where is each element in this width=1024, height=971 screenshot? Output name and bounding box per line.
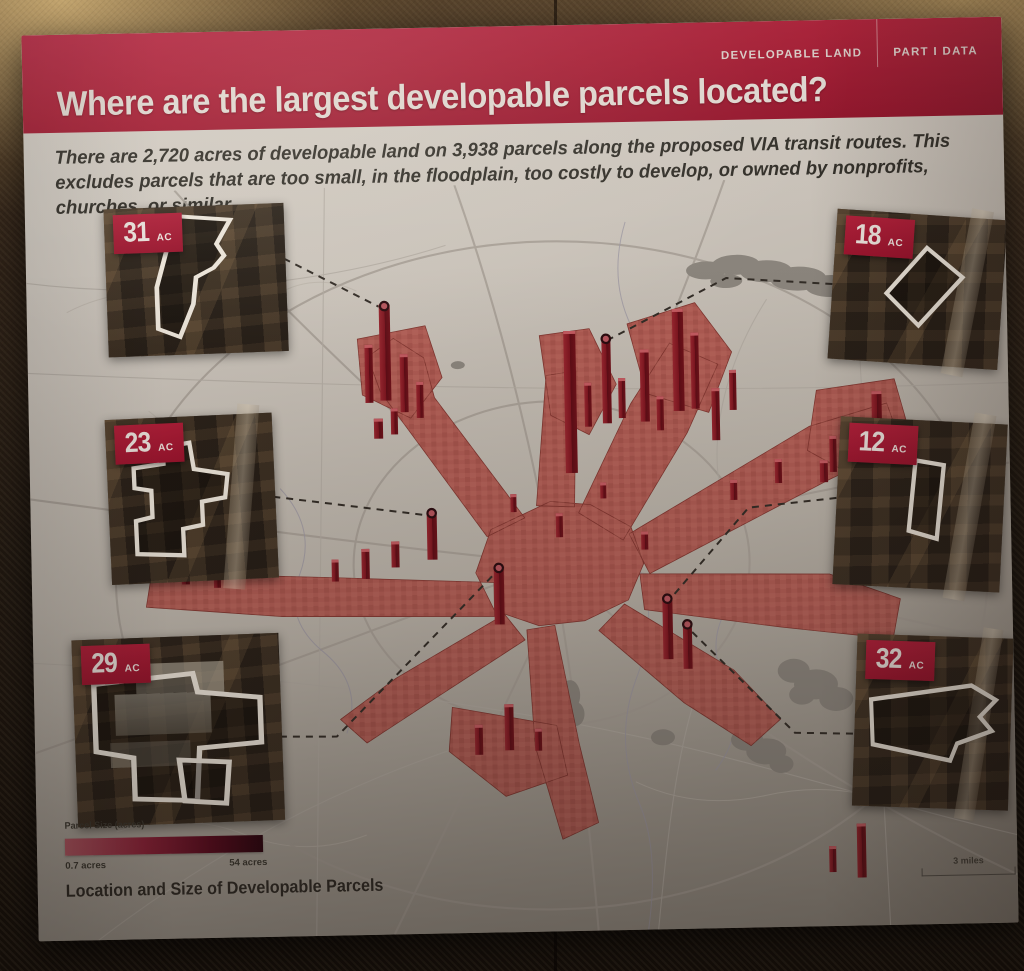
photo-of-exhibit-panel: DEVELOPABLE LAND PART I DATA Where are t… [0,0,1024,971]
acreage-badge: 32 AC [865,640,935,681]
eyebrow-divider [877,19,879,67]
acreage-value: 12 [858,425,885,458]
acreage-value: 31 [123,216,150,249]
inset-29ac: 29 AC [71,633,285,827]
acreage-unit: AC [124,663,140,675]
inset-31ac: 31 AC [103,203,288,357]
acreage-badge: 31 AC [113,213,183,254]
acreage-badge: 18 AC [844,215,915,259]
legend-title: Parcel Size (acres) [64,817,256,832]
acreage-badge: 12 AC [848,423,918,465]
legend-min-label: 0.7 acres [65,860,106,872]
part-label: PART I DATA [893,45,978,59]
acreage-unit: AC [909,660,925,672]
scale-bar: 3 miles [921,855,1015,877]
acreage-value: 32 [875,642,902,675]
acreage-badge: 29 AC [81,644,151,685]
inset-32ac: 32 AC [852,634,1014,811]
category-label: DEVELOPABLE LAND [721,47,863,62]
acreage-unit: AC [157,232,173,244]
header-band: DEVELOPABLE LAND PART I DATA Where are t… [21,17,1003,134]
inset-18ac: 18 AC [828,209,1008,370]
acreage-unit: AC [887,237,903,249]
parcel-size-legend: Parcel Size (acres) 0.7 acres 54 acres [64,817,267,872]
acreage-badge: 23 AC [114,423,184,465]
acreage-unit: AC [891,444,907,456]
acreage-unit: AC [158,442,174,454]
legend-max-label: 54 acres [229,857,267,869]
exhibit-poster: DEVELOPABLE LAND PART I DATA Where are t… [21,17,1018,942]
inset-23ac: 23 AC [105,413,279,585]
header-eyebrow: DEVELOPABLE LAND PART I DATA [721,37,978,70]
page-title: Where are the largest developable parcel… [56,70,828,125]
scale-label: 3 miles [921,855,1015,867]
acreage-value: 29 [91,647,118,680]
acreage-value: 23 [124,426,151,459]
acreage-value: 18 [854,218,882,252]
inset-12ac: 12 AC [832,416,1007,592]
legend-gradient-bar [65,835,263,856]
